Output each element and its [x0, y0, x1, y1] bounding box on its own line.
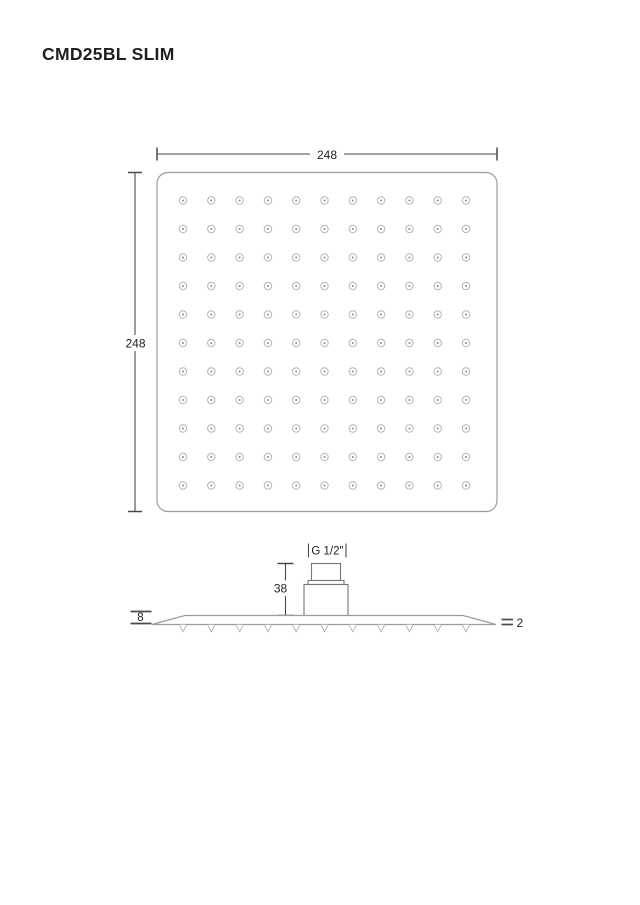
spray-hole-center [210, 485, 212, 487]
spray-hole-center [295, 485, 297, 487]
spray-hole-center [380, 200, 382, 202]
spray-hole-center [408, 257, 410, 259]
spray-hole-center [295, 314, 297, 316]
spray-hole-center [239, 200, 241, 202]
spray-hole-center [239, 485, 241, 487]
spray-hole-center [352, 485, 354, 487]
spray-hole-center [352, 399, 354, 401]
connector-flange [308, 581, 344, 585]
spray-hole-center [295, 342, 297, 344]
side-nozzle [462, 625, 469, 632]
edge-thickness-dimension: 2 [502, 616, 524, 630]
side-nozzle [378, 625, 385, 632]
spray-hole-center [182, 257, 184, 259]
thread-size-label: G 1/2" [311, 546, 343, 558]
spray-hole-center [324, 485, 326, 487]
connector-height-label: 38 [274, 582, 288, 596]
height-dimension-label: 248 [125, 336, 145, 350]
spray-hole-center [437, 371, 439, 373]
edge-thickness-label: 2 [517, 616, 524, 630]
top-width-dimension: 248 [157, 147, 497, 163]
spray-hole-center [295, 257, 297, 259]
spray-hole-center [210, 228, 212, 230]
spray-hole-center [465, 342, 467, 344]
spray-hole-center [182, 342, 184, 344]
spray-hole-center [182, 285, 184, 287]
side-view-nozzles [179, 625, 469, 632]
spray-hole-center [408, 342, 410, 344]
spray-hole-center [437, 314, 439, 316]
spray-hole-center [352, 371, 354, 373]
spray-hole-center [324, 456, 326, 458]
spray-hole-center [408, 314, 410, 316]
spray-hole-center [239, 428, 241, 430]
technical-drawing: 248 248 G 1/2" 38 8 [0, 0, 640, 905]
spray-hole-center [267, 342, 269, 344]
spray-hole-center [352, 428, 354, 430]
spray-hole-center [352, 456, 354, 458]
spray-hole-center [267, 314, 269, 316]
spray-hole-center [437, 200, 439, 202]
spray-hole-center [324, 428, 326, 430]
spray-hole-center [408, 285, 410, 287]
spray-hole-center [239, 342, 241, 344]
spray-hole-center [210, 257, 212, 259]
side-nozzle [264, 625, 271, 632]
spray-hole-center [380, 285, 382, 287]
body-thickness-label: 8 [137, 612, 143, 624]
body-thickness-dimension: 8 [131, 612, 152, 625]
spray-hole-center [267, 456, 269, 458]
connector-height-dimension: 38 [268, 564, 294, 616]
spray-hole-center [380, 228, 382, 230]
spray-hole-center [182, 200, 184, 202]
spray-hole-center [182, 399, 184, 401]
spray-hole-center [465, 485, 467, 487]
width-dimension-label: 248 [317, 148, 337, 162]
spray-hole-center [380, 342, 382, 344]
spray-hole-center [267, 399, 269, 401]
spray-hole-center [437, 456, 439, 458]
spray-hole-center [465, 371, 467, 373]
spray-hole-center [239, 228, 241, 230]
spray-hole-center [267, 257, 269, 259]
spray-hole-center [465, 257, 467, 259]
spray-hole-center [352, 314, 354, 316]
spray-hole-center [380, 456, 382, 458]
spray-hole-center [295, 428, 297, 430]
spray-hole-center [295, 228, 297, 230]
spray-hole-center [437, 399, 439, 401]
spray-hole-center [408, 200, 410, 202]
spray-hole-center [437, 285, 439, 287]
spray-hole-center [352, 200, 354, 202]
spray-hole-center [380, 257, 382, 259]
spray-hole-center [267, 285, 269, 287]
spray-hole-center [352, 257, 354, 259]
spray-hole-center [295, 200, 297, 202]
spray-hole-center [267, 485, 269, 487]
spray-hole-center [210, 399, 212, 401]
spray-hole-center [437, 228, 439, 230]
spray-hole-center [210, 314, 212, 316]
spray-hole-center [210, 456, 212, 458]
spray-hole-center [210, 371, 212, 373]
spray-hole-center [380, 428, 382, 430]
spray-hole-center [182, 428, 184, 430]
spray-hole-center [210, 200, 212, 202]
side-nozzle [293, 625, 300, 632]
spray-hole-center [465, 228, 467, 230]
spray-hole-center [239, 314, 241, 316]
spray-hole-center [465, 456, 467, 458]
spray-hole-center [465, 200, 467, 202]
spray-hole-center [324, 314, 326, 316]
side-nozzle [179, 625, 186, 632]
spray-hole-center [295, 371, 297, 373]
spray-hole-center [182, 371, 184, 373]
spray-hole-center [267, 371, 269, 373]
spray-hole-center [465, 428, 467, 430]
spray-hole-center [324, 285, 326, 287]
spray-hole-center [437, 485, 439, 487]
spray-hole-center [465, 399, 467, 401]
spray-hole-center [408, 399, 410, 401]
side-nozzle [236, 625, 243, 632]
spray-hole-center [408, 371, 410, 373]
spray-hole-center [408, 485, 410, 487]
spray-hole-center [239, 371, 241, 373]
shower-head-side-profile [152, 616, 496, 625]
connector-thread [312, 564, 341, 581]
connector [304, 564, 348, 616]
side-nozzle [434, 625, 441, 632]
spray-hole-center [267, 428, 269, 430]
spray-hole-center [437, 257, 439, 259]
spray-hole-center [324, 371, 326, 373]
spray-hole-center [352, 342, 354, 344]
spray-hole-center [182, 456, 184, 458]
spray-hole-center [210, 285, 212, 287]
spray-hole-center [239, 285, 241, 287]
spray-hole-center [465, 285, 467, 287]
spray-hole-center [267, 228, 269, 230]
spray-hole-center [380, 485, 382, 487]
spray-hole-center [408, 456, 410, 458]
side-nozzle [208, 625, 215, 632]
spray-hole-center [324, 257, 326, 259]
spray-hole-center [239, 456, 241, 458]
connector-body [304, 585, 348, 616]
spray-hole-center [324, 399, 326, 401]
spray-hole-center [324, 200, 326, 202]
spray-hole-center [210, 342, 212, 344]
spray-hole-center [295, 399, 297, 401]
spray-hole-center [437, 342, 439, 344]
thread-size-dimension: G 1/2" [309, 544, 347, 558]
spray-hole-center [324, 228, 326, 230]
spray-hole-center [182, 314, 184, 316]
spray-hole-center [380, 399, 382, 401]
spray-hole-center [380, 314, 382, 316]
side-nozzle [406, 625, 413, 632]
spray-hole-center [267, 200, 269, 202]
spray-hole-center [182, 228, 184, 230]
spray-hole-center [239, 257, 241, 259]
spray-hole-center [295, 456, 297, 458]
spray-hole-center [380, 371, 382, 373]
left-height-dimension: 248 [121, 173, 151, 512]
spray-hole-center [408, 428, 410, 430]
spray-hole-center [465, 314, 467, 316]
spray-hole-center [210, 428, 212, 430]
spray-hole-center [352, 228, 354, 230]
side-nozzle [349, 625, 356, 632]
side-nozzle [321, 625, 328, 632]
spray-hole-center [239, 399, 241, 401]
spray-hole-center [408, 228, 410, 230]
spray-hole-center [295, 285, 297, 287]
spray-hole-center [324, 342, 326, 344]
spray-hole-center [437, 428, 439, 430]
spray-hole-center [352, 285, 354, 287]
spray-hole-center [182, 485, 184, 487]
